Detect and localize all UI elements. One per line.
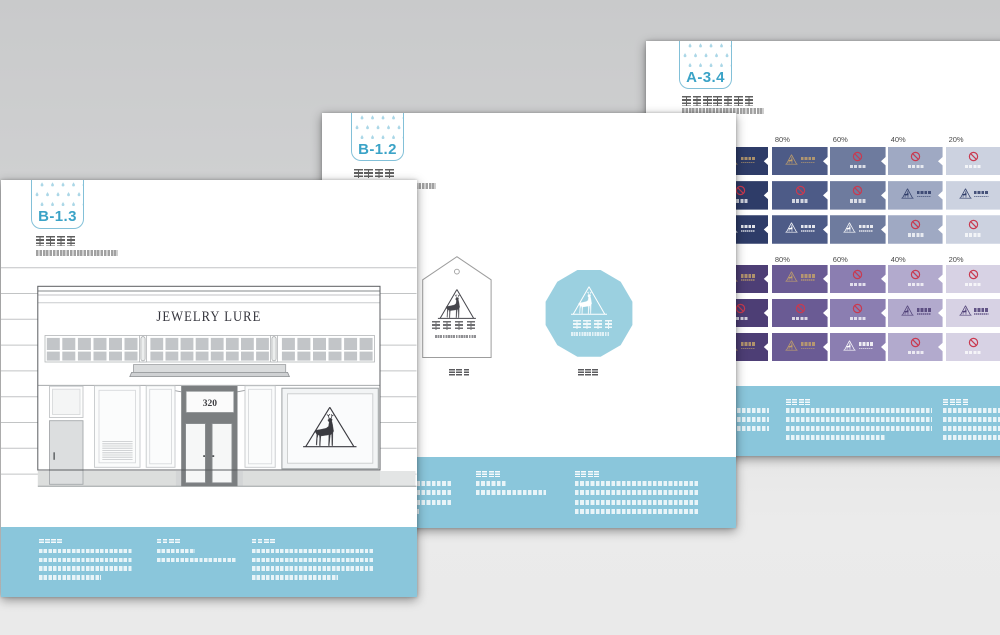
svg-text:JEWELRY LURE: JEWELRY LURE bbox=[156, 309, 261, 325]
svg-text:320: 320 bbox=[203, 399, 218, 409]
